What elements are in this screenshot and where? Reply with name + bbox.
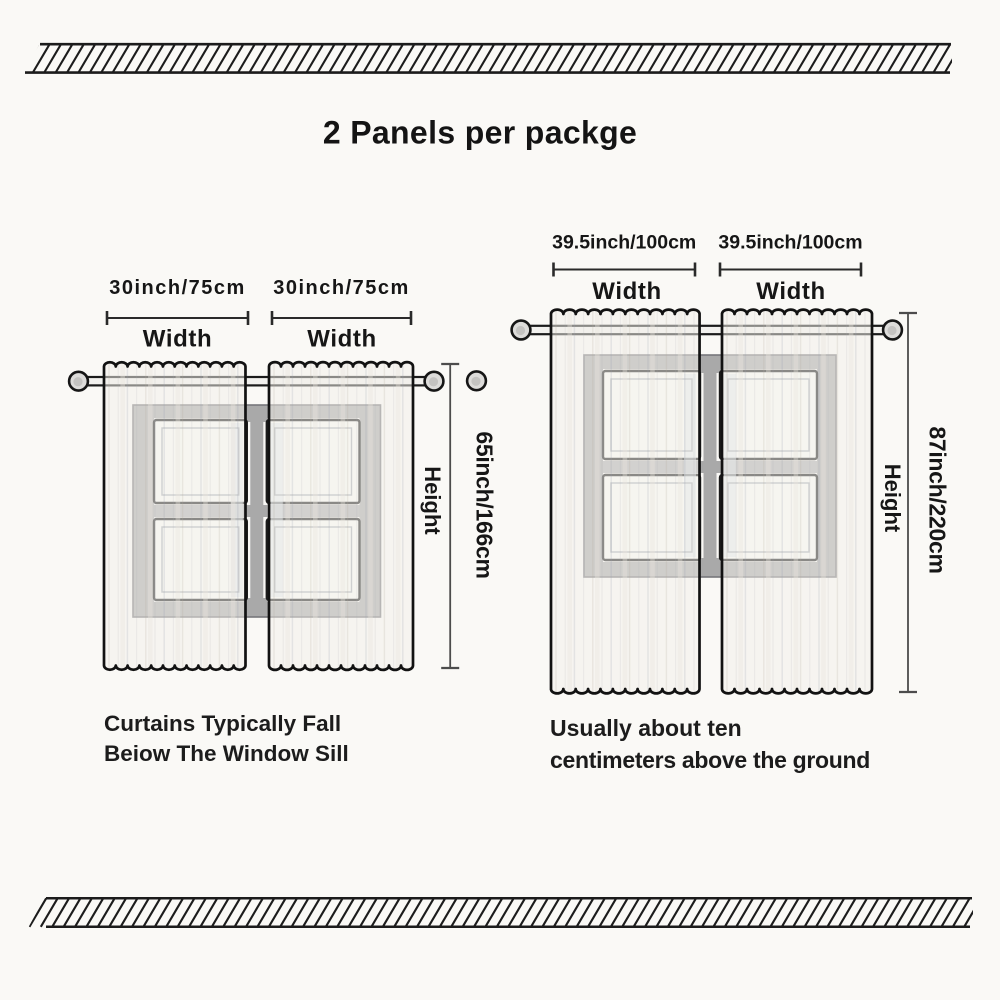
svg-text:Width: Width xyxy=(756,278,825,305)
svg-text:Beiow The Window Sill: Beiow The Window Sill xyxy=(104,741,349,766)
svg-text:Width: Width xyxy=(592,278,661,305)
svg-text:87inch/220cm: 87inch/220cm xyxy=(925,426,951,573)
svg-text:Usually about ten: Usually about ten xyxy=(550,715,742,741)
svg-text:Height: Height xyxy=(420,466,445,535)
svg-text:Height: Height xyxy=(880,464,905,533)
svg-text:Width: Width xyxy=(307,326,376,353)
svg-text:39.5inch/100cm: 39.5inch/100cm xyxy=(552,232,696,254)
svg-text:Width: Width xyxy=(143,326,212,353)
svg-text:Curtains Typically Fall: Curtains Typically Fall xyxy=(104,711,341,736)
svg-text:2 Panels per packge: 2 Panels per packge xyxy=(323,115,637,151)
svg-text:centimeters above the ground: centimeters above the ground xyxy=(550,747,870,773)
svg-text:30inch/75cm: 30inch/75cm xyxy=(109,277,246,299)
svg-text:39.5inch/100cm: 39.5inch/100cm xyxy=(718,232,862,254)
svg-text:65inch/166cm: 65inch/166cm xyxy=(472,431,498,578)
svg-text:30inch/75cm: 30inch/75cm xyxy=(273,277,410,299)
